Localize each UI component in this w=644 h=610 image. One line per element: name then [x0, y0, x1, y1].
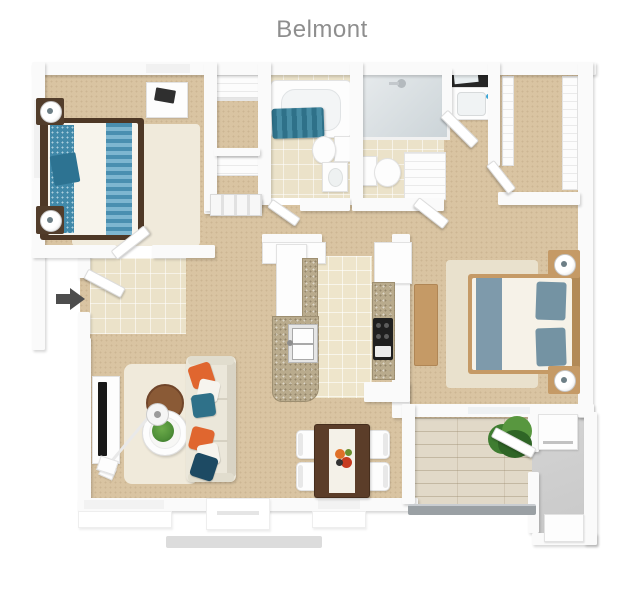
- tv-icon: [98, 382, 107, 456]
- window: [468, 407, 530, 414]
- faucet-icon: [287, 340, 293, 346]
- bath1-sink: [322, 162, 348, 192]
- shower-stall: [360, 72, 450, 140]
- burner: [376, 334, 381, 339]
- wall: [300, 198, 350, 211]
- lamp-top: [561, 261, 567, 267]
- wall: [204, 62, 217, 214]
- wall: [258, 62, 271, 205]
- shower-arm: [389, 82, 399, 85]
- wall: [578, 62, 593, 418]
- utility-box: [544, 514, 584, 542]
- window: [146, 64, 190, 73]
- burner: [384, 323, 389, 328]
- floor-plan: Belmont: [0, 0, 644, 610]
- desk: [146, 82, 188, 118]
- shower-curtain: [271, 107, 324, 139]
- linen-shelves: [404, 152, 446, 200]
- wall: [152, 245, 215, 258]
- kitchen-cabinet-right: [374, 242, 412, 284]
- wall: [350, 62, 363, 205]
- counter-left-top: [302, 258, 318, 320]
- wall: [402, 404, 415, 504]
- nightstand: [548, 366, 580, 394]
- bath1-sink-basin: [328, 168, 343, 187]
- bed-pillow: [535, 281, 566, 320]
- bed-runner: [106, 123, 132, 235]
- wall: [528, 472, 539, 533]
- toilet2-bowl: [374, 158, 401, 187]
- throw-pillow-teal: [191, 393, 217, 419]
- chair-back: [298, 465, 303, 488]
- bay-window-glass: [217, 511, 259, 515]
- toilet1-bowl: [312, 136, 336, 164]
- wall: [584, 412, 597, 545]
- walkin-rail-left: [502, 76, 514, 166]
- wall: [488, 62, 500, 166]
- closet2-shelf: [216, 156, 262, 176]
- patio-railing: [408, 504, 536, 515]
- sofa: [186, 356, 236, 482]
- entry-arrow-icon: [56, 288, 86, 310]
- flower-centerpiece: [336, 459, 343, 466]
- nightstand: [36, 98, 64, 125]
- lamp-top: [561, 377, 567, 383]
- stove: [373, 318, 393, 360]
- chair-back: [383, 433, 388, 456]
- dining-table: [314, 424, 370, 498]
- arrow-shaft: [56, 294, 70, 304]
- heater-slit: [543, 441, 573, 444]
- arc-lamp-head: [146, 403, 169, 426]
- flower-leaf: [345, 449, 352, 456]
- bed-pillow: [535, 327, 566, 366]
- wall: [32, 245, 116, 258]
- bed-guest: [468, 274, 580, 374]
- entry-floor: [90, 258, 186, 334]
- sofa-armrest: [188, 356, 234, 365]
- sink-basin: [292, 328, 314, 344]
- throw-blanket: [50, 152, 81, 186]
- window: [84, 500, 164, 509]
- water-heater: [538, 414, 578, 450]
- walkin-rail-right: [562, 76, 578, 190]
- bifold-doors: [210, 194, 262, 216]
- burner: [384, 334, 389, 339]
- arrow-head: [70, 288, 85, 310]
- lamp-top: [47, 217, 53, 223]
- wall: [498, 192, 580, 205]
- kitchen-floor: [314, 256, 372, 398]
- lamp-top: [47, 108, 53, 114]
- oven-door: [375, 346, 391, 357]
- bay-window: [206, 498, 270, 530]
- bed-blanket: [476, 278, 502, 370]
- closet1-rod: [216, 98, 260, 101]
- dresser: [414, 284, 438, 366]
- nightstand: [36, 206, 64, 234]
- wall: [364, 382, 410, 402]
- arc-lamp-bulb: [154, 411, 161, 418]
- nightstand: [548, 250, 580, 278]
- window: [318, 500, 360, 509]
- wall: [214, 148, 260, 156]
- chair-back: [383, 465, 388, 488]
- laptop-icon: [154, 87, 176, 103]
- window-sill: [312, 511, 366, 528]
- sink-basin: [292, 344, 314, 360]
- chair-back: [298, 433, 303, 456]
- floorplan-title: Belmont: [0, 16, 644, 44]
- kitchen-sink: [288, 324, 318, 363]
- window-sill: [78, 511, 172, 528]
- sofa-back: [227, 361, 236, 477]
- burner: [376, 323, 381, 328]
- lower-ledge: [166, 536, 322, 548]
- closet1-shelf: [216, 74, 262, 98]
- vanity-basin: [457, 92, 486, 116]
- headboard: [571, 274, 580, 374]
- wall: [32, 62, 596, 75]
- wall: [78, 312, 90, 340]
- wall: [78, 338, 91, 511]
